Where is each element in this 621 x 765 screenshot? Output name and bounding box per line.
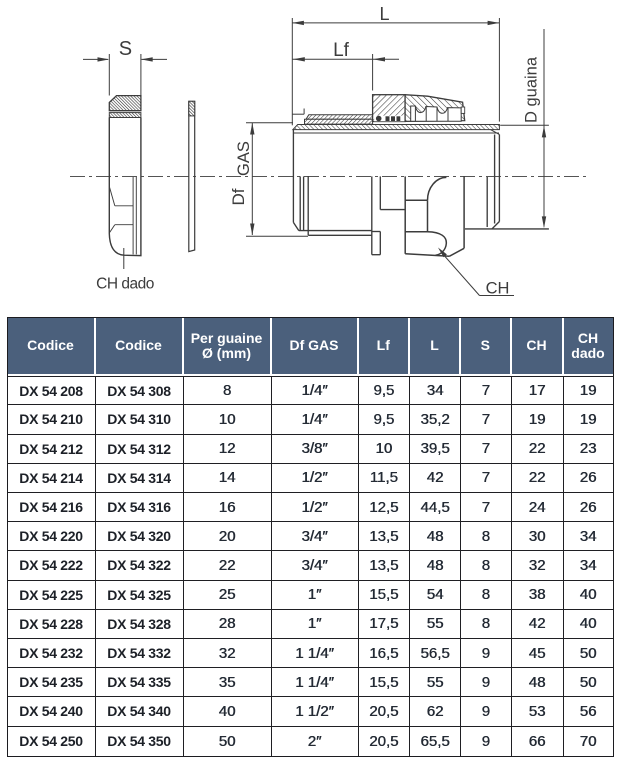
svg-text:GAS: GAS [235, 141, 253, 176]
svg-text:L: L [379, 4, 389, 24]
svg-text:S: S [119, 38, 132, 60]
svg-text:CH dado: CH dado [96, 276, 154, 293]
svg-text:D guaina: D guaina [523, 56, 541, 123]
svg-text:CH: CH [486, 280, 510, 298]
svg-text:Lf: Lf [333, 40, 350, 61]
svg-text:Df: Df [229, 188, 248, 205]
